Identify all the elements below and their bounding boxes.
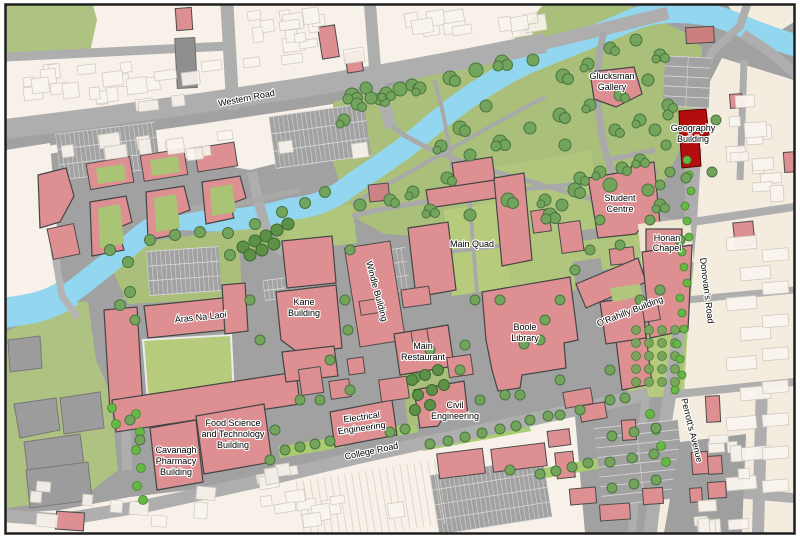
svg-text:Kane: Kane: [293, 297, 314, 307]
svg-text:Building: Building: [677, 134, 709, 144]
svg-text:Engineering: Engineering: [431, 411, 479, 421]
svg-text:Food Science: Food Science: [205, 418, 260, 428]
svg-text:Main Quad: Main Quad: [450, 239, 494, 249]
svg-text:Centre: Centre: [606, 204, 633, 214]
svg-text:Honan: Honan: [654, 233, 681, 243]
svg-text:Building: Building: [160, 467, 192, 477]
svg-text:and Technology: and Technology: [202, 429, 265, 439]
svg-text:Library: Library: [511, 333, 539, 343]
svg-text:Building: Building: [288, 308, 320, 318]
svg-text:Chapel: Chapel: [653, 243, 682, 253]
svg-text:Gallery: Gallery: [598, 82, 627, 92]
svg-text:Boole: Boole: [513, 322, 536, 332]
svg-text:Cavanagh: Cavanagh: [155, 445, 196, 455]
svg-text:Pharmacy: Pharmacy: [156, 456, 197, 466]
svg-text:Building: Building: [217, 440, 249, 450]
svg-text:Glucksman: Glucksman: [589, 71, 634, 81]
svg-text:Restaurant: Restaurant: [401, 352, 446, 362]
svg-text:Civil: Civil: [447, 400, 464, 410]
svg-text:Geography: Geography: [671, 123, 716, 133]
svg-text:Main: Main: [413, 341, 433, 351]
svg-text:Student: Student: [604, 193, 636, 203]
